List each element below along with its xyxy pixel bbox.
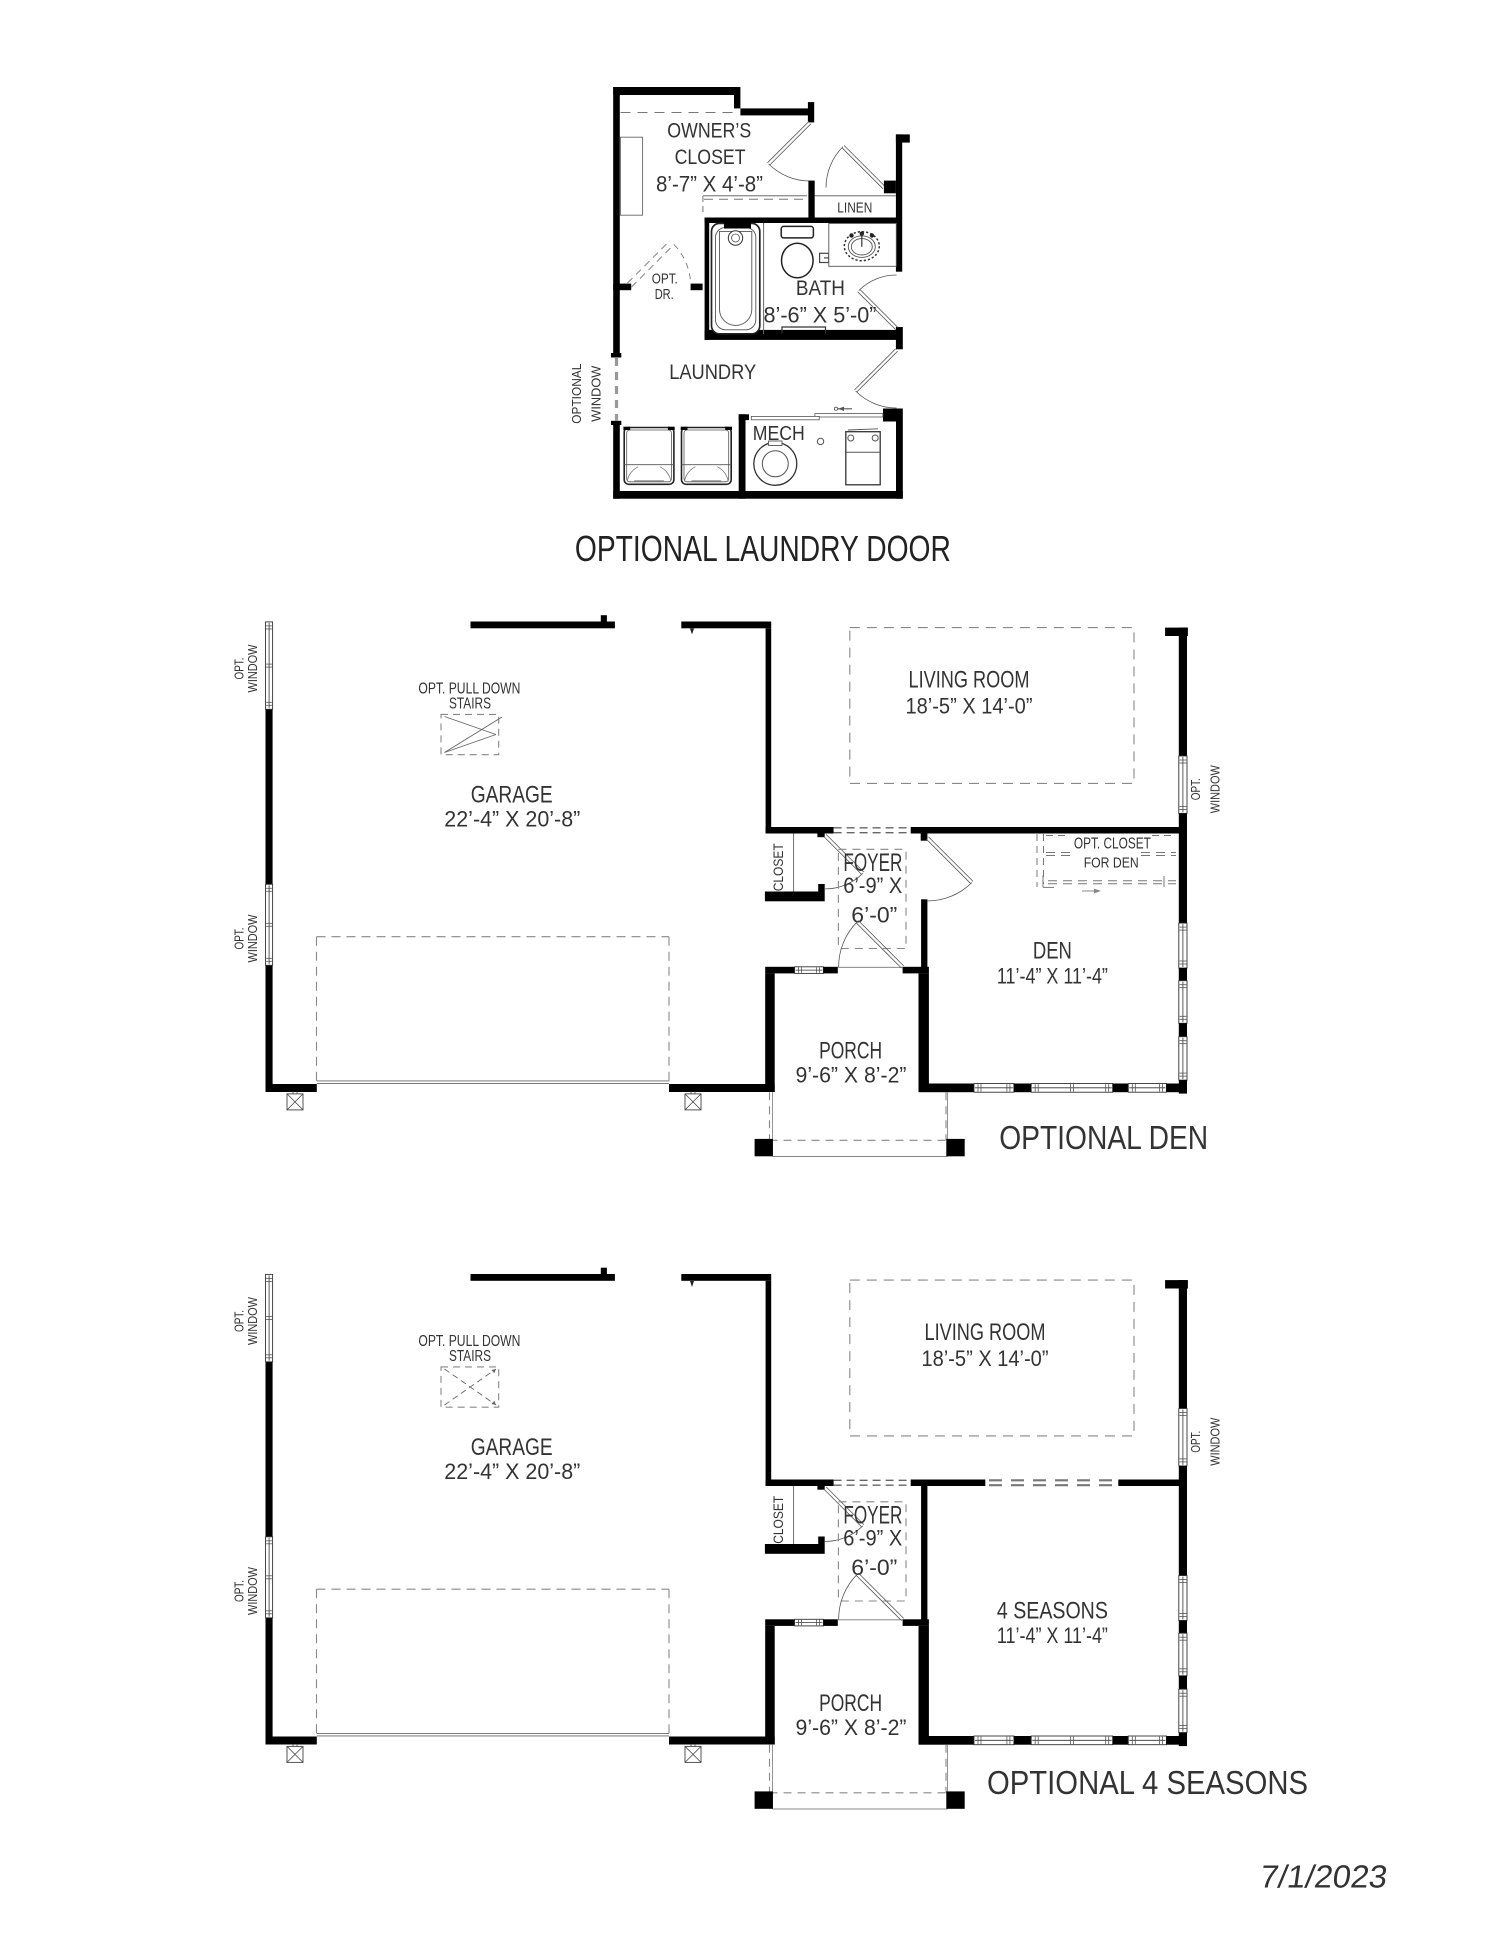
svg-text:OPT.: OPT. xyxy=(233,658,247,680)
svg-text:9’-6” X 8’-2”: 9’-6” X 8’-2” xyxy=(796,1062,907,1087)
svg-text:22’-4” X 20’-8”: 22’-4” X 20’-8” xyxy=(444,1459,580,1484)
svg-text:WINDOW: WINDOW xyxy=(246,914,260,962)
svg-text:WINDOW: WINDOW xyxy=(246,1297,260,1345)
svg-text:OPT.: OPT. xyxy=(233,1580,247,1602)
svg-text:OWNER’S: OWNER’S xyxy=(667,119,751,143)
svg-text:6’-9” X: 6’-9” X xyxy=(843,873,902,898)
svg-text:OPT.: OPT. xyxy=(652,271,678,288)
svg-text:OPT.: OPT. xyxy=(1189,1431,1203,1453)
svg-text:DEN: DEN xyxy=(1033,938,1072,965)
svg-text:7/1/2023: 7/1/2023 xyxy=(1258,1859,1390,1895)
svg-text:WINDOW: WINDOW xyxy=(589,365,604,422)
svg-text:11’-4” X 11’-4”: 11’-4” X 11’-4” xyxy=(997,964,1108,989)
svg-text:OPT.: OPT. xyxy=(233,1310,247,1332)
svg-text:OPTIONAL: OPTIONAL xyxy=(569,364,584,424)
svg-text:LIVING ROOM: LIVING ROOM xyxy=(909,667,1030,694)
svg-text:6’-0”: 6’-0” xyxy=(851,1555,897,1580)
svg-text:CLOSET: CLOSET xyxy=(770,843,786,891)
svg-text:11’-4” X 11’-4”: 11’-4” X 11’-4” xyxy=(997,1623,1108,1648)
svg-text:6’-0”: 6’-0” xyxy=(851,902,897,927)
svg-text:GARAGE: GARAGE xyxy=(471,781,553,808)
svg-text:OPTIONAL 4 SEASONS: OPTIONAL 4 SEASONS xyxy=(987,1764,1308,1801)
svg-text:LAUNDRY: LAUNDRY xyxy=(669,360,756,384)
svg-text:OPTIONAL DEN: OPTIONAL DEN xyxy=(999,1119,1208,1156)
svg-text:18’-5” X 14’-0”: 18’-5” X 14’-0” xyxy=(922,1346,1049,1371)
svg-text:OPT.: OPT. xyxy=(1189,778,1203,800)
svg-text:6’-9” X: 6’-9” X xyxy=(843,1525,902,1550)
svg-text:PORCH: PORCH xyxy=(819,1038,882,1065)
svg-text:STAIRS: STAIRS xyxy=(449,696,491,713)
svg-text:FOR DEN: FOR DEN xyxy=(1084,854,1139,871)
svg-text:8’-6” X 5’-0”: 8’-6” X 5’-0” xyxy=(764,303,877,328)
svg-text:8’-7” X 4’-8”: 8’-7” X 4’-8” xyxy=(656,171,763,196)
svg-text:4 SEASONS: 4 SEASONS xyxy=(997,1598,1108,1625)
svg-text:OPT.: OPT. xyxy=(233,928,247,950)
svg-text:9’-6” X 8’-2”: 9’-6” X 8’-2” xyxy=(796,1715,907,1740)
svg-text:CLOSET: CLOSET xyxy=(770,1495,786,1543)
svg-text:LINEN: LINEN xyxy=(837,200,872,217)
svg-text:18’-5” X 14’-0”: 18’-5” X 14’-0” xyxy=(906,693,1033,718)
svg-text:DR.: DR. xyxy=(655,286,674,303)
svg-text:WINDOW: WINDOW xyxy=(1209,1418,1223,1466)
svg-text:WINDOW: WINDOW xyxy=(246,1567,260,1615)
svg-text:WINDOW: WINDOW xyxy=(246,644,260,692)
svg-text:LIVING ROOM: LIVING ROOM xyxy=(925,1319,1046,1346)
svg-text:STAIRS: STAIRS xyxy=(449,1348,491,1365)
svg-text:WINDOW: WINDOW xyxy=(1209,765,1223,813)
svg-text:OPTIONAL LAUNDRY DOOR: OPTIONAL LAUNDRY DOOR xyxy=(575,528,951,569)
svg-text:GARAGE: GARAGE xyxy=(471,1434,553,1461)
svg-text:PORCH: PORCH xyxy=(819,1690,882,1717)
svg-text:CLOSET: CLOSET xyxy=(675,145,746,169)
svg-text:BATH: BATH xyxy=(796,276,845,300)
svg-text:22’-4” X 20’-8”: 22’-4” X 20’-8” xyxy=(444,806,580,831)
svg-text:OPT. CLOSET: OPT. CLOSET xyxy=(1074,836,1151,853)
